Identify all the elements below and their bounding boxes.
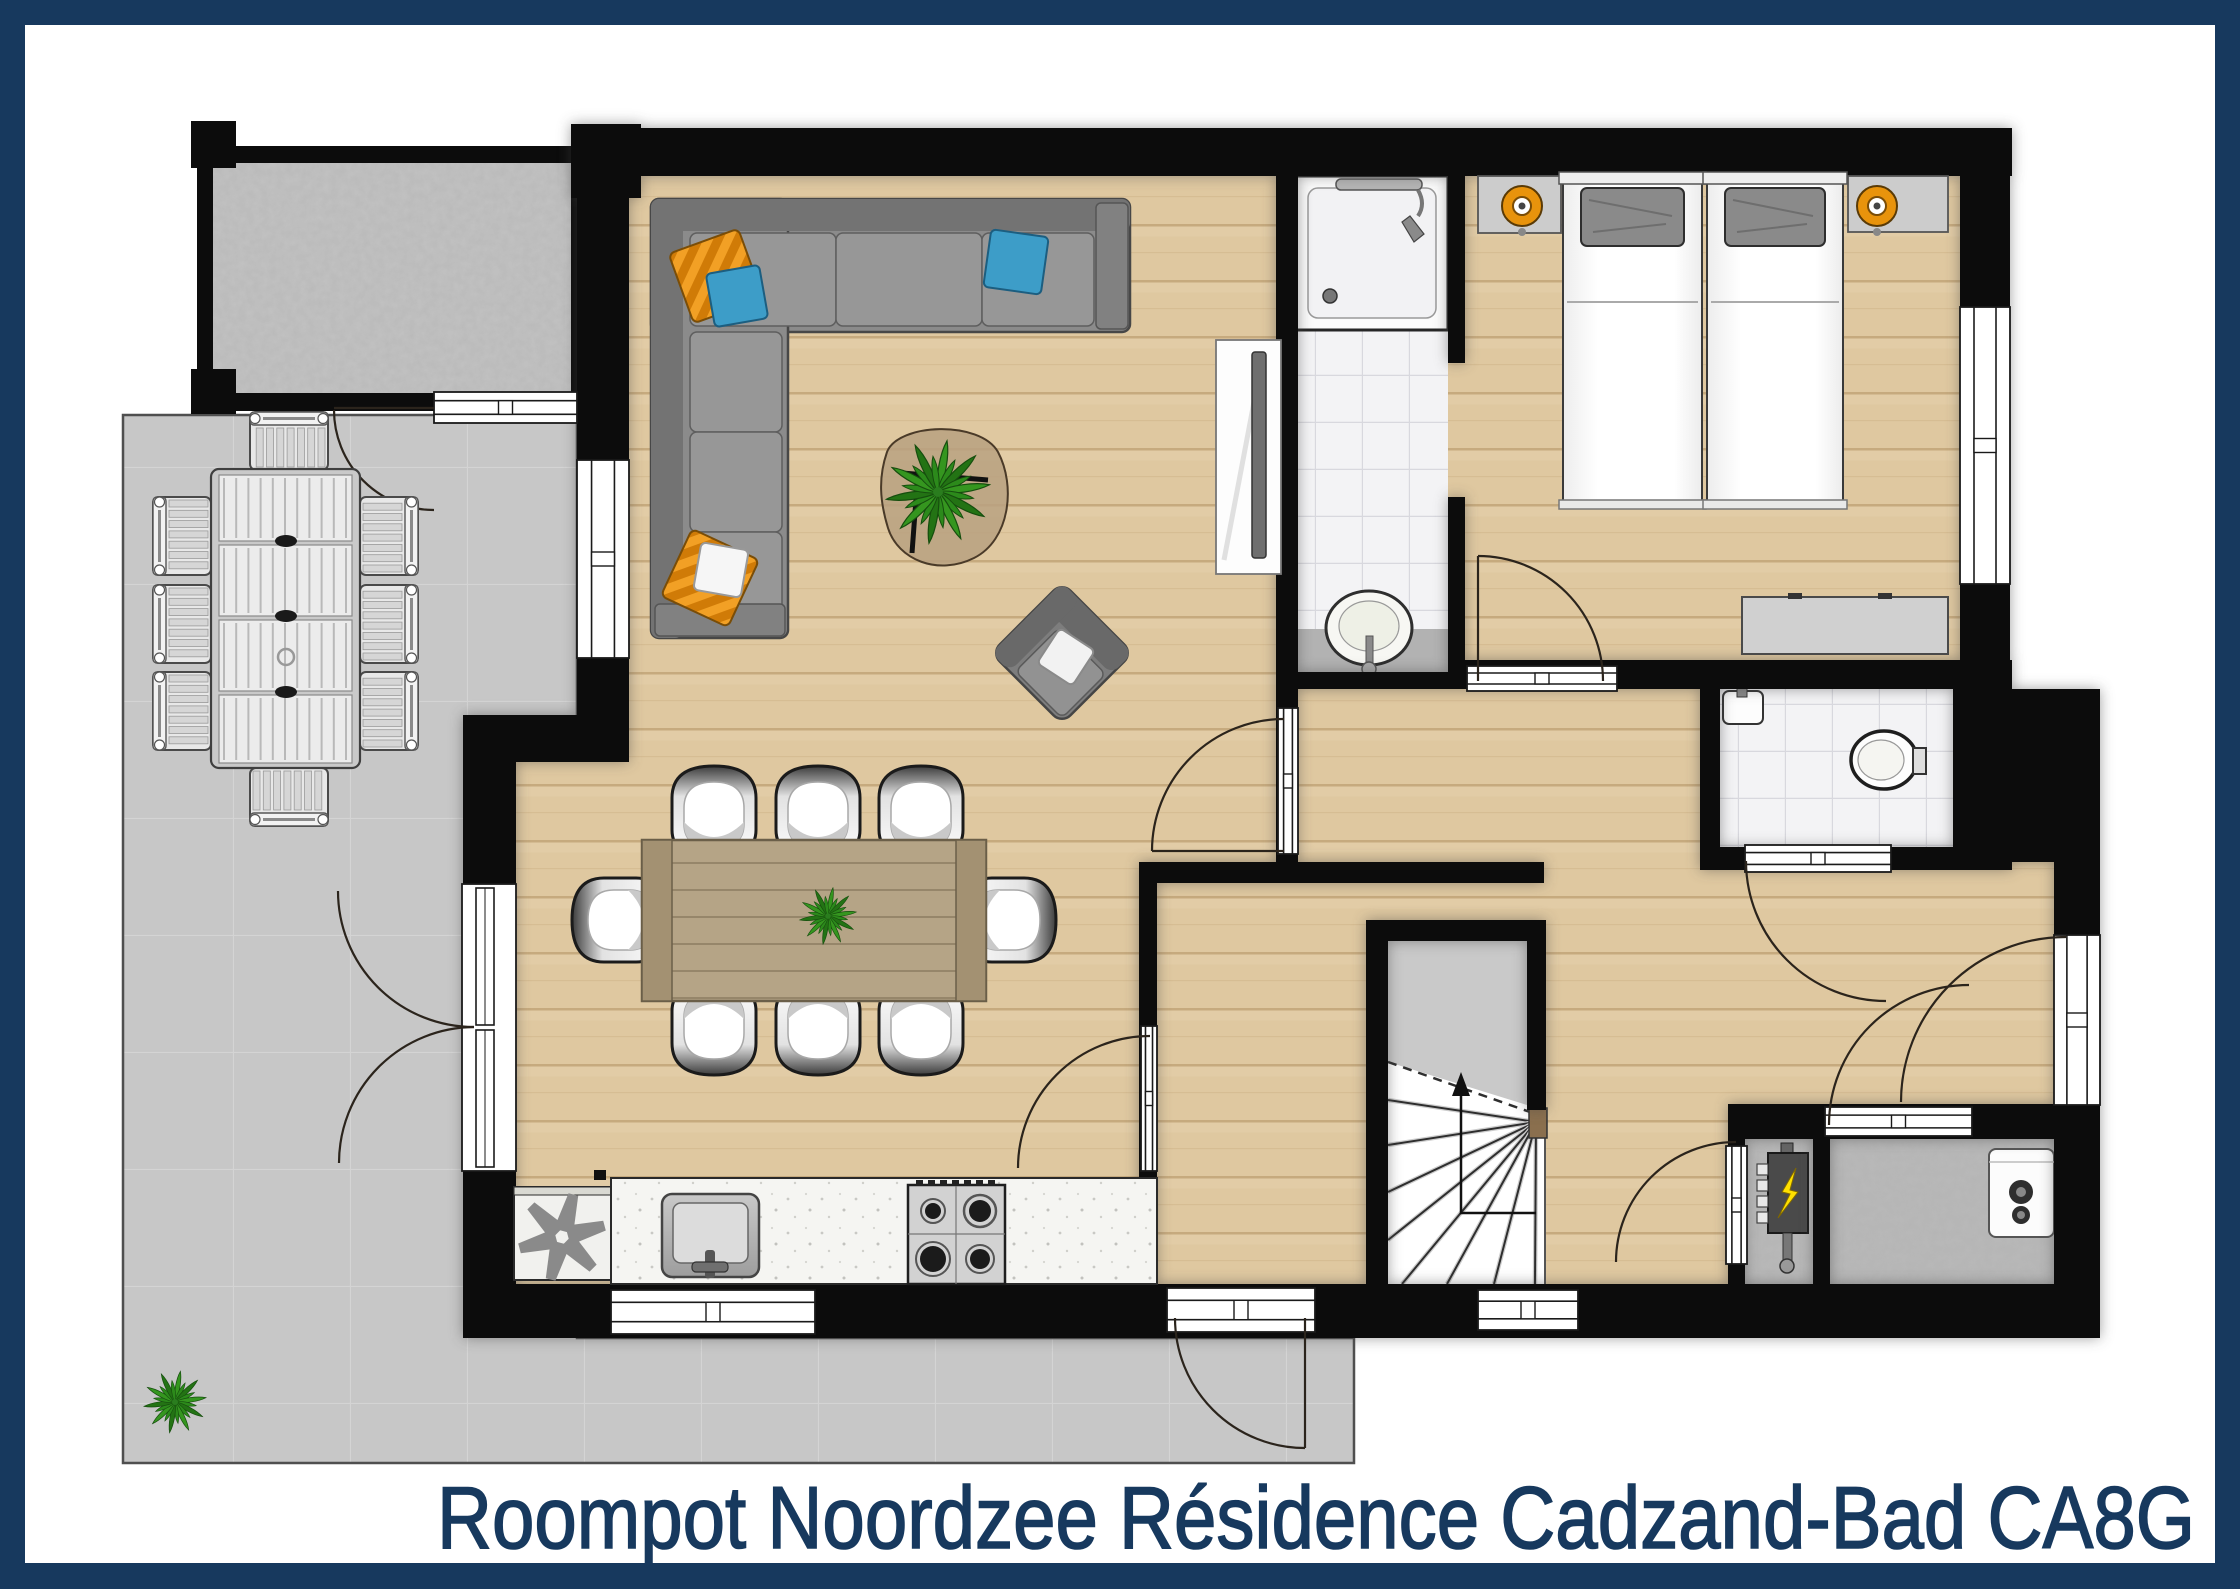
svg-text:Roompot Noordzee Résidence Cad: Roompot Noordzee Résidence Cadzand-Bad C… bbox=[437, 1468, 2195, 1567]
